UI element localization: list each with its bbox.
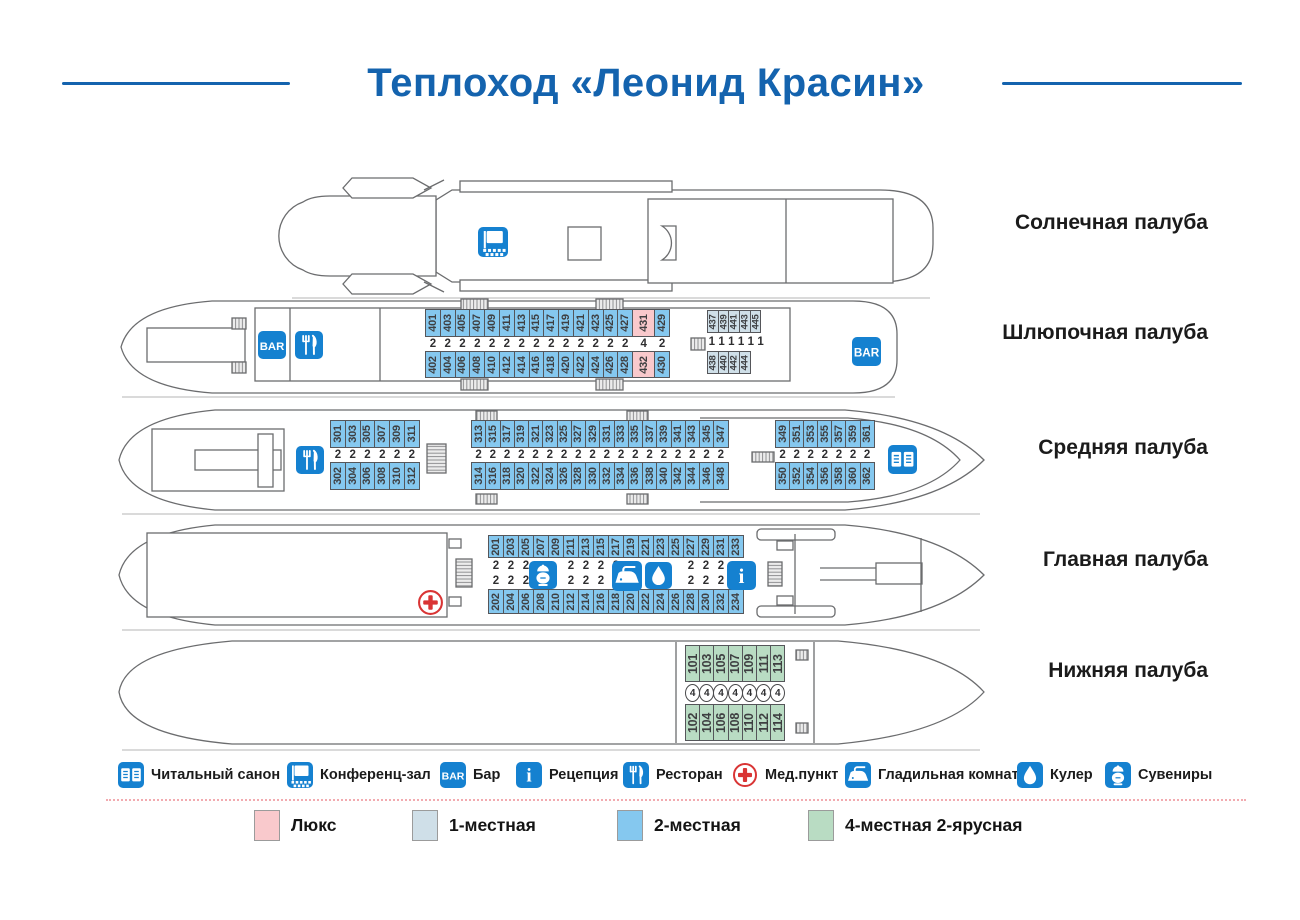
cabin-230[interactable]: 230 [698,589,714,614]
cabin-316[interactable]: 316 [485,462,500,490]
capacity-cell: 2 [528,448,543,462]
cabin-223[interactable]: 223 [653,535,669,558]
legend-type-label: Люкс [291,815,337,836]
cabin-303[interactable]: 303 [345,420,361,448]
cabin-203[interactable]: 203 [503,535,519,558]
cabin-319[interactable]: 319 [514,420,529,448]
cabin-number: 209 [550,538,562,555]
legend-type-label: 2-местная [654,815,741,836]
cabin-332[interactable]: 332 [599,462,614,490]
cabin-358[interactable]: 358 [831,462,846,490]
cabin-362[interactable]: 362 [860,462,875,490]
cabin-327[interactable]: 327 [571,420,586,448]
cabin-320[interactable]: 320 [514,462,529,490]
cabin-number: 345 [701,425,713,442]
capacity-cell: 2 [573,337,589,351]
cabin-431[interactable]: 431 [632,309,655,337]
cabin-column: 3452346 [699,420,714,490]
cabin-226[interactable]: 226 [668,589,684,614]
cabin-218[interactable]: 218 [608,589,624,614]
cabin-number: 317 [501,425,513,442]
cabin-column: 1034104 [699,645,714,741]
cabin-number: 331 [601,425,613,442]
cabin-411[interactable]: 411 [499,309,515,337]
cabin-number: 229 [700,538,712,555]
capacity-cell: 2 [603,337,619,351]
cabin-column: 3312332 [599,420,614,490]
cabin-number: 204 [505,593,517,610]
cabin-322[interactable]: 322 [528,462,543,490]
capacity-label: 1 [736,336,746,348]
cabin-424[interactable]: 424 [588,351,604,378]
restaurant-icon [623,762,649,788]
cabin-210[interactable]: 210 [548,589,564,614]
cabin-344[interactable]: 344 [685,462,700,490]
cabin-420[interactable]: 420 [558,351,574,378]
cabin-number: 230 [700,593,712,610]
cabin-346[interactable]: 346 [699,462,714,490]
cabin-number: 114 [771,713,785,732]
cabin-number: 430 [656,356,668,373]
cabin-block-middle-mid: 3132314315231631723183192320321232232323… [471,420,729,490]
cabin-column: 4112412 [499,309,515,378]
cabin-column: 4132414 [514,309,530,378]
cabin-212[interactable]: 212 [563,589,579,614]
cabin-number: 232 [715,593,727,610]
cabin-313[interactable]: 313 [471,420,486,448]
cabin-number: 342 [672,467,684,484]
deck-label-boat: Шлюпочная палуба [788,320,1208,346]
cabin-403[interactable]: 403 [440,309,456,337]
legend-facility-label: Бар [473,767,500,783]
capacity-cell: 2 [374,448,390,462]
cabin-336[interactable]: 336 [628,462,643,490]
cabin-number: 410 [486,356,498,373]
legend-type-lux: Люкс [254,810,337,841]
capacity-cell: 4 [713,682,728,704]
cabin-234[interactable]: 234 [728,589,744,614]
cabin-214[interactable]: 214 [578,589,594,614]
capacity-cell: 2 [488,573,504,589]
cabin-430[interactable]: 430 [654,351,670,378]
cabin-number: 212 [565,593,577,610]
cabin-number: 109 [742,654,756,674]
cabin-202[interactable]: 202 [488,589,504,614]
cabin-423[interactable]: 423 [588,309,604,337]
cabin-206[interactable]: 206 [518,589,534,614]
legend-type-double: 2-местная [617,810,741,841]
cabin-column: 4032404 [440,309,456,378]
cabin-232[interactable]: 232 [713,589,729,614]
cabin-312[interactable]: 312 [404,462,420,490]
cabin-428[interactable]: 428 [617,351,633,378]
cabin-407[interactable]: 407 [469,309,485,337]
capacity-cell: 2 [593,573,609,589]
cabin-number: 429 [656,314,668,331]
capacity-cell: 2 [578,558,594,573]
cabin-412[interactable]: 412 [499,351,515,378]
legend-facility-label: Гладильная комната [878,767,1027,783]
cabin-416[interactable]: 416 [529,351,545,378]
deck-label-sun: Солнечная палуба [788,210,1208,236]
capacity-cell: 2 [593,558,609,573]
capacity-cell: 2 [499,337,515,351]
capacity-cell: 4 [756,682,771,704]
cabin-348[interactable]: 348 [713,462,728,490]
cabin-column: 4252426 [603,309,619,378]
cabin-column: 3392340 [656,420,671,490]
cabin-number: 316 [487,467,499,484]
capacity-cell: 2 [330,448,346,462]
cabin-228[interactable]: 228 [683,589,699,614]
cabin-415[interactable]: 415 [529,309,545,337]
capacity-cell: 2 [585,448,600,462]
cabin-324[interactable]: 324 [542,462,557,490]
cabin-number: 217 [610,538,622,555]
cabin-number: 437 [707,314,718,329]
cabin-number: 104 [700,713,714,733]
cabin-339[interactable]: 339 [656,420,671,448]
cabin-305[interactable]: 305 [360,420,376,448]
cabin-number: 307 [376,425,388,442]
cabin-column: 3032304 [345,420,361,490]
legend-facility-med: Мед.пункт [732,762,838,788]
cabin-111[interactable]: 111 [756,645,771,682]
cabin-number: 225 [670,538,682,555]
cabin-404[interactable]: 404 [440,351,456,378]
deck-plan: Теплоход «Леонид Красин» [0,0,1300,920]
cabin-331[interactable]: 331 [599,420,614,448]
cabin-224[interactable]: 224 [653,589,669,614]
cabin-221[interactable]: 221 [638,535,654,558]
cabin-326[interactable]: 326 [557,462,572,490]
med-icon [732,762,758,788]
cabin-417[interactable]: 417 [543,309,559,337]
cabin-number: 220 [625,593,637,610]
cabin-216[interactable]: 216 [593,589,609,614]
cabin-number: 322 [530,467,542,484]
cabin-314[interactable]: 314 [471,462,486,490]
cabin-number: 201 [490,538,502,555]
cabin-329[interactable]: 329 [585,420,600,448]
cabin-219[interactable]: 219 [623,535,639,558]
capacity-cell: 2 [440,337,456,351]
cabin-342[interactable]: 342 [671,462,686,490]
cabin-311[interactable]: 311 [404,420,420,448]
cabin-106[interactable]: 106 [713,704,728,741]
cabin-209[interactable]: 209 [548,535,564,558]
legend-facility-info: iРецепция [516,762,618,788]
cabin-number: 323 [544,425,556,442]
cabin-column: 20322204 [503,535,519,614]
cabin-number: 349 [777,425,789,442]
capacity-cell: 2 [455,337,471,351]
cabin-block-middle-aft: 3012302303230430523063072308309231031123… [330,420,420,490]
cabin-number: 356 [819,467,831,484]
svg-text:BAR: BAR [260,341,284,353]
cabin-410[interactable]: 410 [484,351,500,378]
cabin-318[interactable]: 318 [500,462,515,490]
cabin-309[interactable]: 309 [389,420,405,448]
capacity-cell: 2 [360,448,376,462]
capacity-cell: 2 [542,448,557,462]
cabin-number: 352 [791,467,803,484]
cabin-column: 21322214 [578,535,594,614]
capacity-cell: 2 [699,448,714,462]
cabin-column: 1094110 [742,645,757,741]
cabin-350[interactable]: 350 [775,462,790,490]
cabin-113[interactable]: 113 [770,645,785,682]
cabin-304[interactable]: 304 [345,462,361,490]
cabin-107[interactable]: 107 [728,645,743,682]
cabin-column: 22722228 [683,535,699,614]
cabin-215[interactable]: 215 [593,535,609,558]
capacity-cell: 2 [488,558,504,573]
cabin-number: 218 [610,593,622,610]
cabin-109[interactable]: 109 [742,645,757,682]
cabin-323[interactable]: 323 [542,420,557,448]
capacity-cell: 4 [770,682,785,704]
capacity-cell: 2 [571,448,586,462]
cabin-427[interactable]: 427 [617,309,633,337]
capacity-cell: 2 [471,448,486,462]
capacity-label: 1 [727,336,737,348]
cabin-block-boat-main: 4012402403240440524064072408409241041124… [425,309,670,378]
cabin-number: 324 [544,467,556,484]
cabin-227[interactable]: 227 [683,535,699,558]
cabin-425[interactable]: 425 [603,309,619,337]
cabin-229[interactable]: 229 [698,535,714,558]
cabin-356[interactable]: 356 [817,462,832,490]
cabin-334[interactable]: 334 [614,462,629,490]
cabin-column: 3332334 [614,420,629,490]
cabin-number: 221 [640,538,652,555]
cabin-345[interactable]: 345 [699,420,714,448]
capacity-circle: 4 [742,684,757,702]
cabin-number: 106 [714,713,728,733]
cabin-column: 20122202 [488,535,504,614]
cabin-302[interactable]: 302 [330,462,346,490]
cabin-445[interactable]: 445 [750,310,762,333]
cabin-number: 105 [714,654,728,674]
legend-facility-iron: Гладильная комната [845,762,1027,788]
legend-facility-label: Рецепция [549,767,618,783]
cabin-205[interactable]: 205 [518,535,534,558]
cabin-340[interactable]: 340 [656,462,671,490]
cabin-103[interactable]: 103 [699,645,714,682]
capacity-cell: 2 [614,448,629,462]
cabin-number: 405 [456,314,468,331]
cabin-column: 3372338 [642,420,657,490]
cabin-337[interactable]: 337 [642,420,657,448]
cabin-number: 442 [729,355,740,370]
cabin-308[interactable]: 308 [374,462,390,490]
cabin-column: 22922230 [698,535,714,614]
cabin-213[interactable]: 213 [578,535,594,558]
cabin-number: 423 [590,314,602,331]
cabin-354[interactable]: 354 [803,462,818,490]
capacity-circle: 4 [756,684,771,702]
capacity-cell: 2 [469,337,485,351]
cabin-column: 3412342 [671,420,686,490]
capacity-cell: 2 [654,337,670,351]
capacity-label: 1 [746,336,756,348]
cabin-column: 1114112 [756,645,771,741]
cabin-number: 408 [471,356,483,373]
cabin-330[interactable]: 330 [585,462,600,490]
cabin-352[interactable]: 352 [789,462,804,490]
cabin-number: 223 [655,538,667,555]
cabin-328[interactable]: 328 [571,462,586,490]
cabin-number: 445 [750,314,761,329]
cabin-429[interactable]: 429 [654,309,670,337]
info-icon: i [516,762,542,788]
cabin-column: 3472348 [713,420,728,490]
cabin-number: 226 [670,593,682,610]
capacity-cell: 4 [685,682,700,704]
cabin-108[interactable]: 108 [728,704,743,741]
legend-facility-cooler: Кулер [1017,762,1093,788]
cabin-333[interactable]: 333 [614,420,629,448]
cooler-icon [1017,762,1043,788]
cabin-413[interactable]: 413 [514,309,530,337]
cabin-column: 1074108 [728,645,743,741]
cabin-number: 313 [473,425,485,442]
iron-icon [845,762,871,788]
book-icon [118,762,144,788]
capacity-cell: 2 [599,448,614,462]
cabin-341[interactable]: 341 [671,420,686,448]
cabin-number: 211 [565,538,577,555]
capacity-cell: 2 [500,448,515,462]
cabin-414[interactable]: 414 [514,351,530,378]
cabin-110[interactable]: 110 [742,704,757,741]
cabin-102[interactable]: 102 [685,704,700,741]
cabin-233[interactable]: 233 [728,535,744,558]
cabin-number: 404 [442,356,454,373]
cabin-number: 338 [644,467,656,484]
cabin-220[interactable]: 220 [623,589,639,614]
cabin-406[interactable]: 406 [455,351,471,378]
cabin-number: 439 [718,314,729,329]
cabin-number: 216 [595,593,607,610]
souvenirs-icon [1105,762,1131,788]
cabin-number: 205 [520,538,532,555]
cabin-325[interactable]: 325 [557,420,572,448]
cabin-432[interactable]: 432 [632,351,655,378]
cabin-column: 3292330 [585,420,600,490]
legend-facility-conference: Конференц-зал [287,762,431,788]
cabin-217[interactable]: 217 [608,535,624,558]
cabin-307[interactable]: 307 [374,420,390,448]
cabin-number: 419 [560,314,572,331]
type-swatch-double [617,810,643,841]
cabin-335[interactable]: 335 [628,420,643,448]
cabin-column: 3212322 [528,420,543,490]
legend-facility-label: Читальный санон [151,767,280,783]
cabin-306[interactable]: 306 [360,462,376,490]
cabin-347[interactable]: 347 [713,420,728,448]
cabin-number: 224 [655,593,667,610]
cabin-number: 427 [619,314,631,331]
legend-divider [106,799,1246,801]
cabin-401[interactable]: 401 [425,309,441,337]
cabin-101[interactable]: 101 [685,645,700,682]
cabin-421[interactable]: 421 [573,309,589,337]
cooler-icon [645,562,672,589]
cabin-number: 441 [729,314,740,329]
cabin-418[interactable]: 418 [543,351,559,378]
cabin-310[interactable]: 310 [389,462,405,490]
cabin-201[interactable]: 201 [488,535,504,558]
med-icon [417,589,444,616]
capacity-label: 1 [756,336,766,348]
cabin-317[interactable]: 317 [500,420,515,448]
cabin-column: 3052306 [360,420,376,490]
cabin-105[interactable]: 105 [713,645,728,682]
capacity-cell: 2 [529,337,545,351]
cabin-231[interactable]: 231 [713,535,729,558]
cabin-301[interactable]: 301 [330,420,346,448]
cabin-number: 426 [604,356,616,373]
cabin-114[interactable]: 114 [770,704,785,741]
legend-type-label: 4-местная 2-ярусная [845,815,1022,836]
cabin-208[interactable]: 208 [533,589,549,614]
cabin-column: 4314432 [632,309,655,378]
cabin-number: 110 [742,713,756,732]
cabin-222[interactable]: 222 [638,589,654,614]
cabin-338[interactable]: 338 [642,462,657,490]
cabin-211[interactable]: 211 [563,535,579,558]
capacity-cell: 4 [742,682,757,704]
cabin-426[interactable]: 426 [603,351,619,378]
bar-icon: BAR [440,762,466,788]
svg-text:BAR: BAR [442,771,465,783]
deck-label-middle: Средняя палуба [788,435,1208,461]
cabin-405[interactable]: 405 [455,309,471,337]
cabin-315[interactable]: 315 [485,420,500,448]
cabin-number: 332 [601,467,613,484]
cabin-419[interactable]: 419 [558,309,574,337]
cabin-number: 326 [558,467,570,484]
cabin-column: 4052406 [455,309,471,378]
cabin-360[interactable]: 360 [845,462,860,490]
cabin-225[interactable]: 225 [668,535,684,558]
cabin-column: 3272328 [571,420,586,490]
cabin-104[interactable]: 104 [699,704,714,741]
cabin-409[interactable]: 409 [484,309,500,337]
cabin-402[interactable]: 402 [425,351,441,378]
cabin-422[interactable]: 422 [573,351,589,378]
cabin-204[interactable]: 204 [503,589,519,614]
cabin-408[interactable]: 408 [469,351,485,378]
cabin-112[interactable]: 112 [756,704,771,741]
cabin-number: 344 [686,467,698,484]
restaurant-icon [295,331,323,359]
cabin-number: 414 [516,356,528,373]
capacity-cell: 2 [588,337,604,351]
cabin-column: 4152416 [529,309,545,378]
cabin-number: 422 [575,356,587,373]
cabin-343[interactable]: 343 [685,420,700,448]
capacity-cell: 4 [632,337,655,351]
capacity-cell: 2 [503,558,519,573]
cabin-207[interactable]: 207 [533,535,549,558]
cabin-number: 421 [575,314,587,331]
cabin-321[interactable]: 321 [528,420,543,448]
cabin-block-boat-singles: 437438439440441442443444445111111 [707,310,761,374]
cabin-number: 202 [490,593,502,610]
